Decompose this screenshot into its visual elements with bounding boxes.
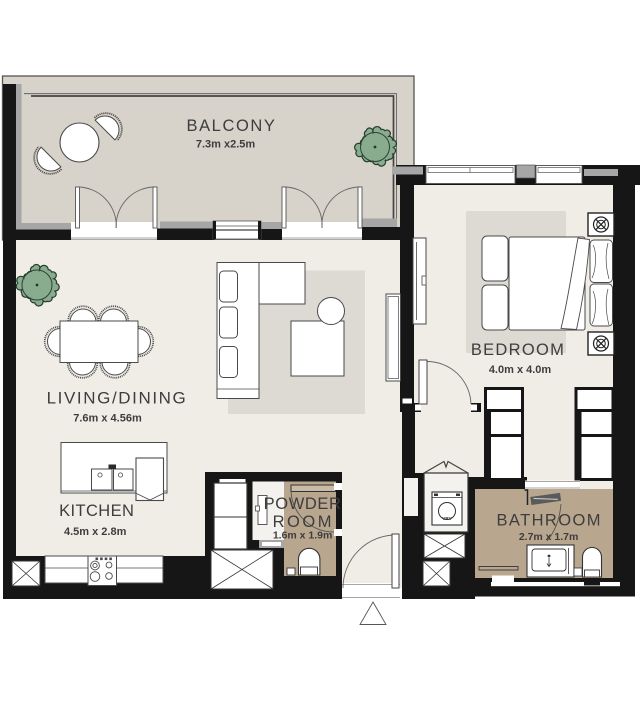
svg-text:2.7m x 1.7m: 2.7m x 1.7m [519,531,579,543]
svg-text:BEDROOM: BEDROOM [471,341,565,359]
svg-text:7.3m x2.5m: 7.3m x2.5m [196,139,256,151]
svg-text:4.0m x 4.0m: 4.0m x 4.0m [489,364,552,376]
svg-text:4.5m x 2.8m: 4.5m x 2.8m [64,526,127,538]
svg-text:KITCHEN: KITCHEN [59,502,134,520]
svg-text:VRV: VRV [442,516,451,521]
svg-text:POWDER: POWDER [264,495,342,513]
svg-text:BATHROOM: BATHROOM [497,512,602,530]
svg-text:1.6m x 1.9m: 1.6m x 1.9m [273,529,333,541]
svg-text:BALCONY: BALCONY [186,117,276,135]
svg-text:7.6m x 4.56m: 7.6m x 4.56m [73,413,142,425]
svg-text:LIVING/DINING: LIVING/DINING [47,389,188,408]
